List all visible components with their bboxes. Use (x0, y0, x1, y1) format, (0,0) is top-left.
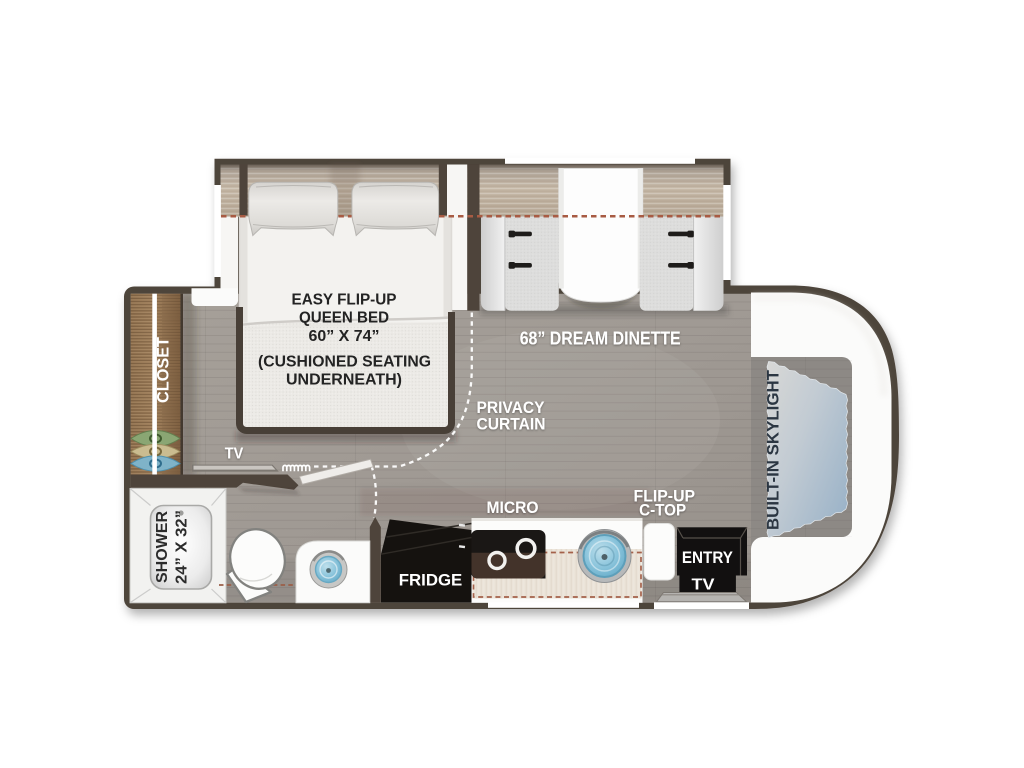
svg-text:PRIVACY: PRIVACY (477, 399, 545, 417)
svg-text:TV: TV (225, 446, 244, 463)
svg-text:24” X 32”: 24” X 32” (174, 510, 191, 584)
svg-text:BUILT-IN SKYLIGHT: BUILT-IN SKYLIGHT (764, 369, 783, 530)
svg-text:EASY FLIP-UP: EASY FLIP-UP (292, 291, 397, 308)
svg-text:TV: TV (692, 577, 716, 594)
svg-text:CLOSET: CLOSET (155, 337, 173, 403)
svg-text:ENTRY: ENTRY (682, 548, 734, 567)
svg-text:68” DREAM DINETTE: 68” DREAM DINETTE (520, 329, 681, 349)
svg-text:C-TOP: C-TOP (639, 501, 686, 519)
svg-text:MICRO: MICRO (487, 499, 539, 517)
svg-text:SHOWER: SHOWER (154, 511, 171, 583)
svg-text:CURTAIN: CURTAIN (477, 416, 546, 434)
svg-text:(CUSHIONED SEATING: (CUSHIONED SEATING (258, 354, 431, 371)
svg-text:60” X 74”: 60” X 74” (309, 328, 380, 345)
svg-text:UNDERNEATH): UNDERNEATH) (286, 372, 402, 389)
svg-text:FRIDGE: FRIDGE (399, 572, 463, 590)
svg-text:QUEEN BED: QUEEN BED (299, 310, 389, 327)
